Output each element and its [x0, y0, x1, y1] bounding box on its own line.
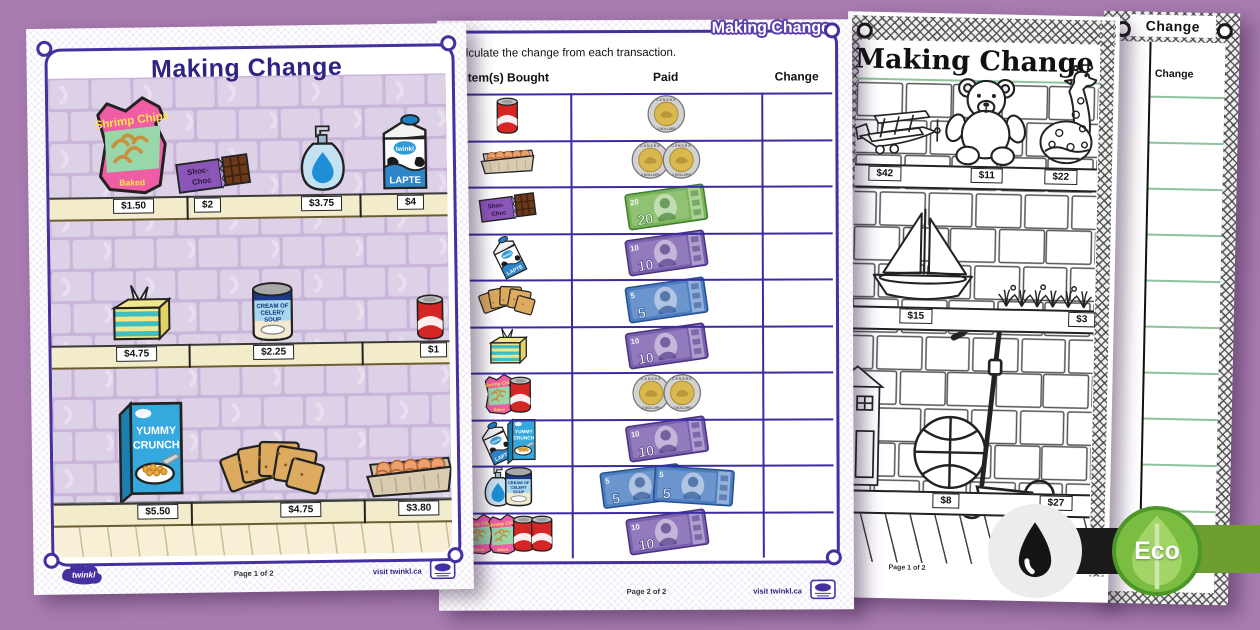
svg-text:CRUNCH: CRUNCH [513, 435, 534, 441]
price-tag: $8 [932, 493, 959, 509]
eggs-icon [363, 450, 452, 499]
svg-text:2 DOLLARS: 2 DOLLARS [673, 405, 692, 409]
svg-text:10: 10 [637, 536, 655, 554]
svg-text:10: 10 [629, 243, 639, 253]
toy-item [945, 72, 1027, 172]
milk-icon: twinkl LAPTE [372, 99, 437, 193]
soap-icon [298, 122, 345, 195]
svg-text:CANADA: CANADA [656, 98, 676, 102]
page1-visit-link: visit twinkl.ca [373, 567, 422, 577]
corner-ring-icon [447, 547, 463, 563]
toy-item [849, 105, 944, 171]
shop-item [107, 282, 176, 350]
cell-change-blank [761, 139, 832, 186]
paid-money: 10 10 [623, 415, 710, 469]
chocolate-bar-icon: Shoc- Choc [478, 190, 536, 224]
paid-money: CANADA 2 DOLLARS [646, 94, 686, 139]
worksheet-page-shop: Shrimp Chips Baked$1.50 Shoc- Choc $2 $3… [26, 23, 474, 595]
table-row: twinkl LAPTE YUMMY CRUNCH 10 10 [444, 418, 833, 466]
table-row: CREAM OF CELERY SOUP 5 5 5 5 [445, 464, 834, 512]
price-tag: $2.25 [253, 344, 294, 360]
toonie-icon: CANADA 2 DOLLARS [661, 140, 701, 180]
crackers-icon [478, 282, 536, 319]
svg-text:SOUP: SOUP [512, 489, 524, 494]
svg-text:10: 10 [636, 257, 654, 275]
shop-item [298, 122, 345, 200]
bill-20-icon: 20 20 [622, 182, 709, 231]
bill-5-icon: 5 5 [651, 464, 735, 507]
tissues-icon [107, 282, 176, 345]
page1-footer: twinkl Page 1 of 2 visit twinkl.ca [52, 557, 456, 589]
price-tag: $3.75 [301, 196, 342, 212]
toy-item [862, 203, 982, 313]
toonie-icon: CANADA 2 DOLLARS [646, 94, 686, 134]
cell-change-blank [762, 278, 833, 325]
corner-ring-icon [36, 41, 52, 57]
svg-text:Baked: Baked [473, 548, 484, 552]
svg-text:10: 10 [637, 443, 655, 461]
column-header-paid: Paid [570, 70, 761, 85]
table-row: Shoc- Choc 20 20 [444, 185, 833, 233]
bought-item [527, 513, 555, 558]
bought-item [478, 282, 536, 324]
page2-title: Making Change [712, 19, 830, 37]
cell-paid: 10 10 [571, 232, 762, 279]
shelf-divider [188, 343, 190, 368]
svg-text:Baked: Baked [497, 548, 508, 552]
page2-instruction: Calculate the change from each transacti… [451, 47, 676, 60]
svg-text:10: 10 [630, 336, 640, 346]
price-tag: $15 [899, 308, 932, 324]
paid-money: 10 10 [624, 508, 711, 562]
bought-item: YUMMY CRUNCH [504, 416, 538, 468]
biplane-icon [849, 105, 944, 166]
shelf-divider [364, 499, 366, 524]
soup-icon: CREAM OF CELERY SOUP [502, 465, 534, 507]
page4-title: Change [1130, 14, 1216, 38]
price-tag: $4.75 [116, 346, 157, 362]
cell-paid: 10 10 [571, 418, 762, 465]
paid-money: 5 5 [651, 464, 736, 512]
price-tag: $3 [1068, 312, 1095, 328]
shelf-divider [191, 501, 193, 526]
price-tag: $4.75 [280, 502, 321, 518]
shelf-divider [186, 195, 188, 220]
cell-paid: 5 5 5 5 [572, 465, 763, 512]
bought-item [506, 373, 534, 418]
price-tag: $5.50 [137, 504, 178, 520]
shop-scene: Shrimp Chips Baked$1.50 Shoc- Choc $2 $3… [47, 46, 452, 558]
price-tag: $3.80 [398, 500, 439, 516]
cell-change-blank [763, 511, 834, 558]
cell-change-blank [762, 418, 833, 465]
svg-text:CRUNCH: CRUNCH [133, 439, 180, 452]
tissues-icon [486, 327, 530, 367]
twinkl-stamp-badge [810, 579, 836, 601]
cell-change-blank [762, 325, 833, 372]
bill-10-icon: 10 10 [624, 508, 711, 557]
worksheet-page-bw-shop: Making Change $42 $11 [836, 11, 1120, 603]
cell-change-blank [763, 464, 834, 511]
svg-text:twinkl: twinkl [396, 146, 414, 153]
toy-item [1033, 65, 1107, 173]
price-tag: $4 [397, 195, 424, 210]
price-tag: $42 [868, 166, 901, 182]
worksheet-page-table: Making Change Calculate the change from … [437, 19, 854, 610]
svg-text:2 DOLLARS: 2 DOLLARS [641, 173, 660, 177]
cell-change-blank [761, 92, 832, 139]
corner-ring-icon [1217, 23, 1233, 39]
table-row: 5 5 [444, 278, 833, 326]
svg-text:20: 20 [629, 197, 639, 207]
table-row: CANADA 2 DOLLARS [443, 92, 832, 140]
bought-item [493, 94, 521, 139]
cell-change-blank [762, 185, 833, 232]
cell-paid: CANADA 2 DOLLARS CANADA 2 DOLLARS [571, 372, 762, 419]
cereal-icon: YUMMY CRUNCH [504, 416, 538, 463]
svg-text:CANADA: CANADA [672, 376, 692, 380]
page2-visit-link: visit twinkl.ca [753, 586, 802, 595]
ink-drop-badge [988, 504, 1082, 598]
shop-item [413, 290, 448, 345]
page1-title: Making Change [46, 51, 446, 86]
svg-text:YUMMY: YUMMY [514, 429, 533, 435]
svg-text:5: 5 [636, 305, 646, 322]
price-tag: $22 [1044, 169, 1077, 185]
bought-item [486, 327, 530, 372]
svg-text:Baked: Baked [119, 177, 145, 187]
svg-text:5: 5 [662, 486, 671, 502]
price-tag: $2 [194, 197, 221, 212]
giraffe-icon [1033, 65, 1107, 168]
paid-money: 10 10 [623, 229, 710, 283]
shelf-divider [361, 341, 363, 366]
svg-text:20: 20 [636, 211, 654, 229]
ink-drop-icon [1008, 518, 1062, 584]
paid-money: CANADA 2 DOLLARS [661, 140, 701, 185]
shop-item: CREAM OF CELERY SOUP [249, 279, 297, 348]
making-change-worksheet-preview: Change Change Making Change [0, 0, 1260, 630]
eco-badge-label: Eco [1134, 537, 1180, 566]
shop-item: twinkl LAPTE [372, 99, 437, 198]
paid-money: 5 5 [623, 275, 710, 329]
table-row: twinkl LAPTE 10 10 [444, 232, 833, 280]
cereal-icon: YUMMY CRUNCH [112, 396, 189, 503]
table-row: CANADA 2 DOLLARS CANADA 2 DOLLARS [443, 139, 832, 187]
column-header-change: Change [761, 69, 832, 83]
shrimp-chips-icon: Shrimp Chips Baked [90, 88, 173, 197]
corner-ring-icon [824, 22, 840, 38]
svg-text:YUMMY: YUMMY [136, 425, 176, 438]
twinkl-stamp-icon [810, 579, 836, 599]
bill-5-icon: 5 5 [623, 275, 710, 324]
svg-text:5: 5 [659, 470, 665, 479]
svg-text:SOUP: SOUP [264, 317, 281, 323]
bill-10-icon: 10 10 [623, 415, 710, 464]
bought-item: Shoc- Choc [478, 190, 536, 229]
shop-item [219, 432, 330, 507]
price-tag: $1 [420, 342, 447, 357]
shop-item [363, 450, 452, 504]
svg-text:CREAM OF: CREAM OF [256, 304, 288, 310]
soda-can-icon [506, 373, 534, 413]
soda-can-icon [413, 290, 448, 340]
cell-paid: 10 10 [571, 325, 762, 372]
shop-item: Shrimp Chips Baked [90, 88, 174, 202]
bill-10-icon: 10 10 [623, 322, 710, 371]
price-tag: $1.50 [113, 198, 154, 214]
page4-change-header: Change [1155, 68, 1194, 81]
svg-text:2 DOLLARS: 2 DOLLARS [642, 406, 661, 410]
table-row: Shrimp Chips Baked Shrimp Chips Baked 10… [445, 511, 834, 559]
svg-text:10: 10 [630, 522, 640, 532]
svg-text:CANADA: CANADA [671, 144, 691, 148]
svg-text:10: 10 [636, 350, 654, 368]
price-tag: $11 [971, 168, 1003, 184]
sailboat-icon [862, 203, 982, 308]
cell-paid: 20 20 [571, 186, 762, 233]
svg-text:2 DOLLARS: 2 DOLLARS [657, 127, 676, 131]
svg-text:10: 10 [630, 429, 640, 439]
cell-change-blank [762, 371, 833, 418]
cell-change-blank [762, 232, 833, 279]
crackers-icon [219, 432, 330, 502]
bought-item [479, 146, 535, 181]
paid-money: CANADA 2 DOLLARS [662, 373, 702, 418]
page4-row-lines [1104, 11, 1240, 14]
svg-text:CELERY: CELERY [260, 310, 284, 316]
shop-item: Shoc- Choc [175, 151, 252, 201]
page3-page-number: Page 1 of 2 [888, 564, 925, 572]
paid-money: 20 20 [622, 182, 709, 236]
plants-icon [996, 277, 1097, 310]
teddy-bear-icon [945, 72, 1027, 167]
bill-10-icon: 10 10 [623, 229, 710, 278]
eggs-icon [479, 146, 535, 176]
hatch-border-top [852, 15, 1116, 45]
cell-paid: 10 10 [572, 511, 763, 558]
eco-badge: Eco [1112, 506, 1202, 596]
bought-item: CREAM OF CELERY SOUP [502, 465, 534, 512]
corner-ring-icon [826, 549, 842, 565]
corner-ring-icon [440, 35, 456, 51]
cell-paid: CANADA 2 DOLLARS [570, 93, 761, 140]
svg-text:CANADA: CANADA [641, 377, 661, 381]
soup-icon: CREAM OF CELERY SOUP [249, 279, 297, 343]
cell-paid: 5 5 [571, 279, 762, 326]
toonie-icon: CANADA 2 DOLLARS [662, 373, 702, 413]
svg-text:2 DOLLARS: 2 DOLLARS [672, 173, 691, 177]
soda-can-icon [493, 94, 521, 134]
table-row: 10 10 [444, 325, 833, 373]
page2-footer: Page 2 of 2 visit twinkl.ca [457, 577, 836, 604]
svg-text:CANADA: CANADA [640, 144, 660, 148]
soda-can-icon [527, 513, 555, 553]
svg-text:LAPTE: LAPTE [389, 175, 421, 186]
svg-text:5: 5 [611, 491, 621, 508]
chocolate-bar-icon: Shoc- Choc [175, 151, 252, 196]
paid-money: 10 10 [623, 322, 710, 376]
shop-item: YUMMY CRUNCH [112, 396, 190, 508]
shelf-divider [359, 193, 361, 218]
shelf-bw [852, 305, 1094, 334]
cell-paid: CANADA 2 DOLLARS CANADA 2 DOLLARS [570, 139, 761, 186]
